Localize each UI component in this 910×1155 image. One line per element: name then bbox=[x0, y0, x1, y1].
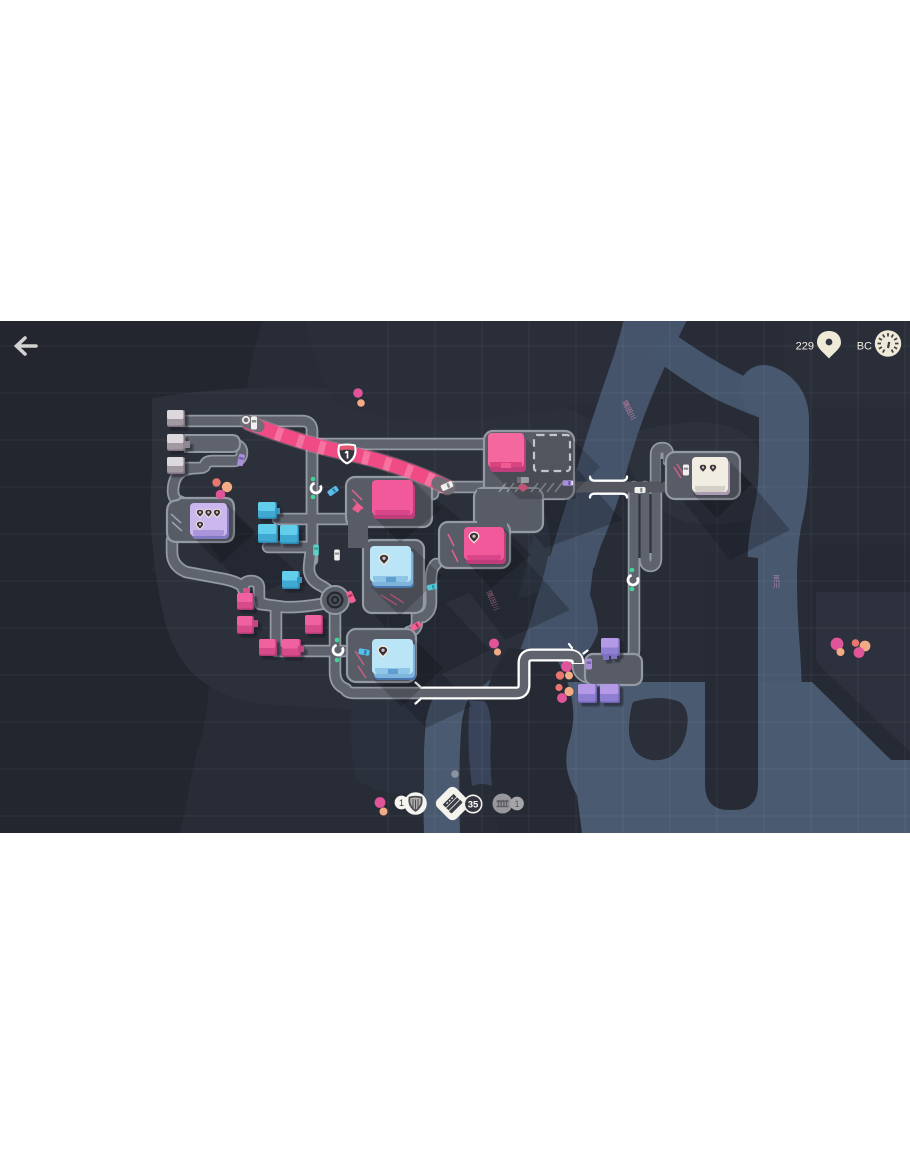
svg-text:229: 229 bbox=[796, 341, 814, 353]
svg-text:1: 1 bbox=[514, 799, 519, 809]
svg-text:荒川: 荒川 bbox=[773, 574, 781, 589]
svg-text:BC: BC bbox=[857, 341, 872, 353]
svg-text:1: 1 bbox=[399, 798, 404, 808]
svg-text:35: 35 bbox=[468, 800, 479, 811]
